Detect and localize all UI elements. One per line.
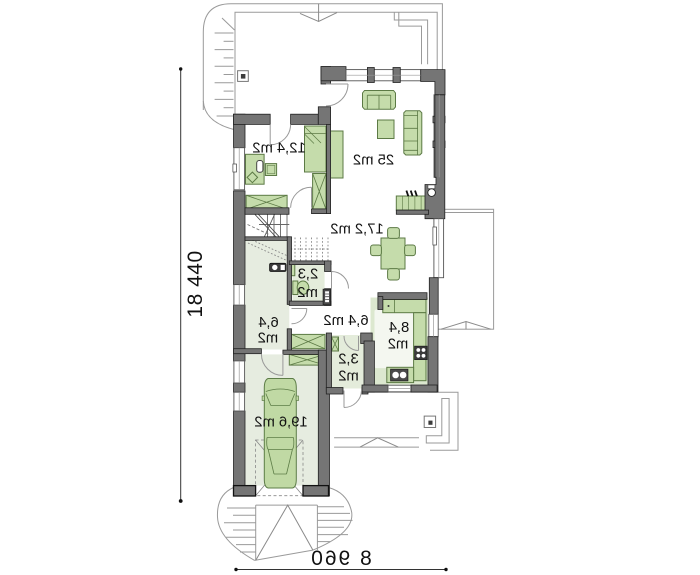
- svg-text:6,4: 6,4: [258, 315, 279, 331]
- svg-text:25 m2: 25 m2: [353, 152, 394, 168]
- svg-text:8 960: 8 960: [309, 547, 372, 570]
- svg-text:6,4 m2: 6,4 m2: [323, 313, 368, 329]
- svg-text:2,3: 2,3: [298, 267, 319, 283]
- svg-text:19,6 m2: 19,6 m2: [254, 414, 307, 430]
- svg-text:m2: m2: [338, 369, 359, 385]
- svg-text:17,2 m2: 17,2 m2: [330, 222, 383, 238]
- svg-text:12,4 m2: 12,4 m2: [252, 141, 305, 157]
- svg-text:m2: m2: [258, 331, 279, 347]
- svg-text:18 440: 18 440: [184, 250, 207, 317]
- svg-text:8,4: 8,4: [389, 320, 410, 336]
- svg-text:3,2: 3,2: [338, 352, 359, 368]
- svg-text:m2: m2: [297, 285, 318, 301]
- svg-text:m2: m2: [388, 337, 409, 353]
